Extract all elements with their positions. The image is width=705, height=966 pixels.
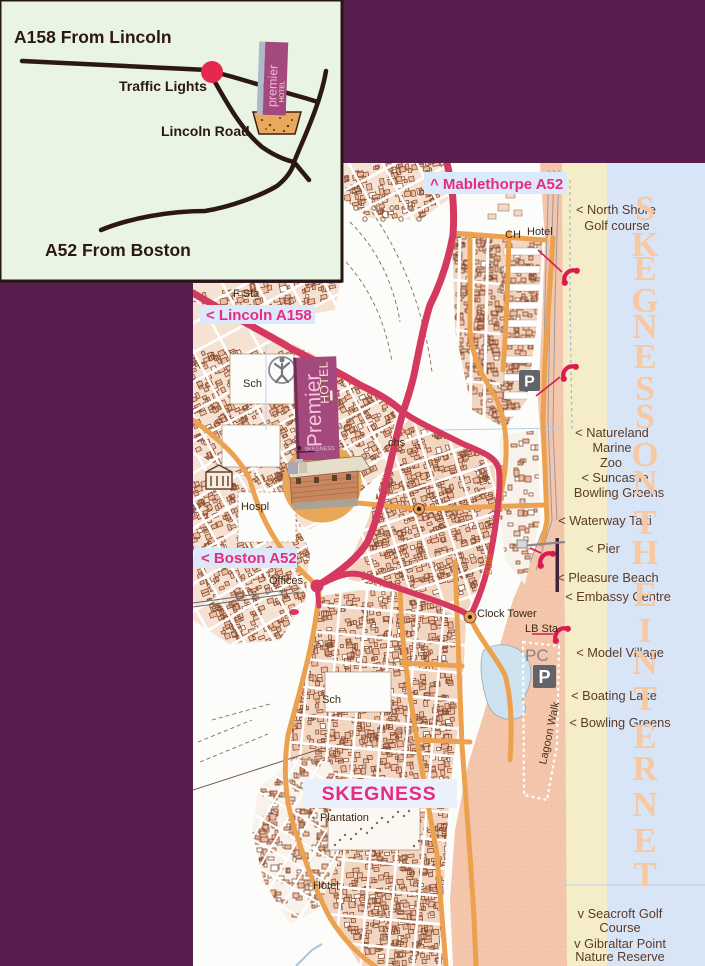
svg-text:HOTEL: HOTEL xyxy=(279,80,287,102)
svg-text:S: S xyxy=(635,397,654,436)
svg-text:Plantation: Plantation xyxy=(320,812,369,824)
svg-text:SKEGNESS: SKEGNESS xyxy=(322,783,437,805)
svg-text:N: N xyxy=(632,463,657,502)
svg-text:Sch: Sch xyxy=(322,694,341,706)
svg-text:< Pier: < Pier xyxy=(586,541,621,556)
svg-text:B145: B145 xyxy=(484,554,494,575)
svg-text:R: R xyxy=(632,749,658,788)
svg-text:chs: chs xyxy=(388,437,406,449)
svg-text:HOTEL: HOTEL xyxy=(316,361,331,404)
svg-text:E: E xyxy=(633,575,656,614)
svg-text:CH: CH xyxy=(505,229,521,241)
svg-text:N: N xyxy=(632,785,657,824)
svg-text:LB Sta: LB Sta xyxy=(525,623,559,635)
svg-text:Zoo: Zoo xyxy=(600,455,622,470)
svg-text:Offices: Offices xyxy=(269,575,304,587)
svg-text:Clock Tower: Clock Tower xyxy=(477,608,537,620)
svg-text:v Seacroft Golf: v Seacroft Golf xyxy=(578,906,663,921)
svg-text:A52 From Boston: A52 From Boston xyxy=(45,240,191,260)
svg-text:Lincoln Road: Lincoln Road xyxy=(161,123,250,139)
svg-text:Nature Reserve: Nature Reserve xyxy=(575,949,665,964)
svg-text:Hotel: Hotel xyxy=(527,226,553,238)
svg-text:H: H xyxy=(631,533,658,572)
svg-text:P: P xyxy=(524,374,535,391)
svg-text:N: N xyxy=(632,643,657,682)
svg-text:F Sta: F Sta xyxy=(233,288,260,300)
svg-text:PC: PC xyxy=(525,646,549,665)
svg-text:^ Mablethorpe A52: ^ Mablethorpe A52 xyxy=(430,176,563,193)
svg-text:Traffic Lights: Traffic Lights xyxy=(119,78,207,94)
svg-text:Hospl: Hospl xyxy=(241,501,269,513)
svg-text:Course: Course xyxy=(599,920,640,935)
svg-text:P: P xyxy=(538,667,550,687)
svg-text:T: T xyxy=(633,679,656,718)
svg-text:A158 From Lincoln: A158 From Lincoln xyxy=(14,27,172,47)
svg-text:T: T xyxy=(633,855,656,894)
svg-text:Marine: Marine xyxy=(592,440,631,455)
svg-text:S: S xyxy=(635,189,654,228)
svg-text:Hotel: Hotel xyxy=(313,880,339,892)
svg-text:Sch: Sch xyxy=(243,378,262,390)
svg-text:< Boston A52: < Boston A52 xyxy=(201,550,297,567)
svg-text:< Lincoln A158: < Lincoln A158 xyxy=(206,307,312,324)
